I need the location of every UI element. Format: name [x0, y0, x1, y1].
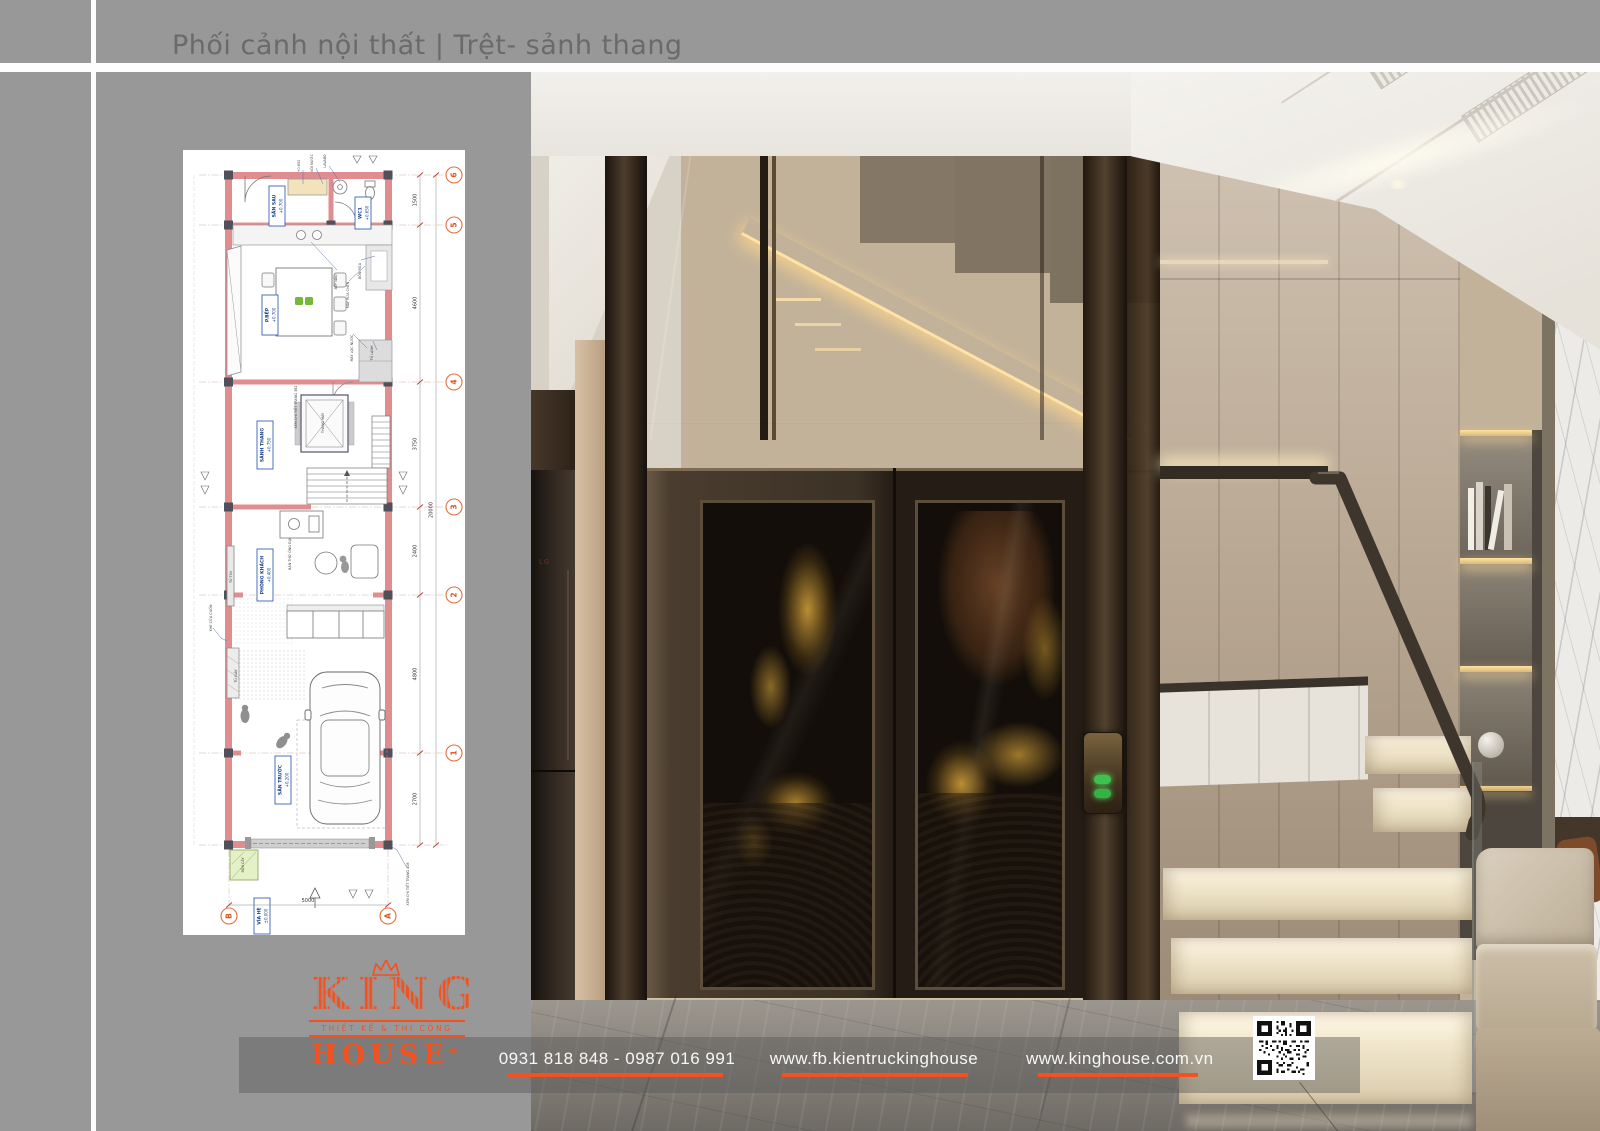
svg-text:6: 6	[450, 172, 459, 177]
vertical-divider-line	[91, 0, 96, 1131]
svg-text:BÀN THỜ ÔNG ĐỊA: BÀN THỜ ÔNG ĐỊA	[287, 537, 292, 570]
svg-text:1: 1	[450, 750, 459, 755]
svg-text:+0.650: +0.650	[365, 205, 370, 220]
svg-text:MÁY LỌC NƯỚC: MÁY LỌC NƯỚC	[349, 334, 354, 362]
svg-text:3750: 3750	[413, 438, 419, 451]
svg-text:+0.400: +0.400	[267, 567, 272, 582]
appliance-logo: LG	[539, 558, 550, 566]
glass-mullion	[760, 148, 768, 440]
svg-text:+0.750: +0.750	[267, 437, 272, 452]
svg-text:TỦ LẠNH: TỦ LẠNH	[369, 345, 374, 361]
wood-panel	[531, 390, 577, 470]
floor-plan-drawing: SÂN SAU +0.700 WC1 +0.650 P.BẾP +0.700 S…	[183, 150, 465, 935]
svg-text:SÂN SAU: SÂN SAU	[271, 194, 278, 217]
svg-text:20000: 20000	[429, 502, 435, 518]
door-glass-left	[700, 500, 875, 990]
svg-text:2: 2	[450, 592, 459, 597]
logo-rule	[309, 1035, 465, 1037]
interior-render: LG	[531, 72, 1600, 1131]
svg-text:4800: 4800	[413, 668, 419, 681]
door-center-seam	[893, 468, 896, 1014]
glass-mullion	[772, 148, 776, 440]
refrigerator: LG	[531, 470, 575, 1000]
logo-king-text: KING	[305, 972, 469, 1018]
stair-tread[interactable]	[1176, 994, 1472, 1012]
svg-text:5: 5	[450, 222, 459, 227]
crown-icon	[371, 960, 401, 976]
sofa-arm	[1476, 1028, 1600, 1131]
svg-text:MÁY RỬA CHÉN: MÁY RỬA CHÉN	[345, 281, 350, 308]
downlight	[1386, 180, 1410, 189]
elevator-shaft-glass	[610, 148, 1160, 440]
horizontal-divider-line	[0, 63, 1600, 72]
svg-text:BỒN CÂY: BỒN CÂY	[240, 857, 245, 873]
sofa-backrest	[1476, 848, 1594, 948]
svg-text:SÂN TRƯỚC: SÂN TRƯỚC	[277, 764, 284, 795]
svg-text:VÒI NƯỚC: VÒI NƯỚC	[309, 153, 314, 172]
svg-text:KHE CỬA CUỐN: KHE CỬA CUỐN	[208, 604, 213, 631]
svg-text:THANG MÁY: THANG MÁY	[320, 412, 325, 434]
kitchen	[227, 225, 392, 382]
website-url: www.kinghouse.com.vn	[1026, 1049, 1208, 1069]
logo-tagline: THIẾT KẾ & THI CÔNG	[305, 1024, 469, 1033]
svg-text:BẾP NẤU: BẾP NẤU	[332, 274, 338, 289]
elevator-and-stairs	[295, 395, 390, 504]
phone-numbers: 0931 818 848 - 0987 016 991	[498, 1049, 736, 1069]
svg-text:A: A	[384, 913, 393, 919]
svg-text:3: 3	[450, 504, 459, 509]
accent-underline	[1038, 1073, 1198, 1077]
svg-text:BỒN RỬA: BỒN RỬA	[357, 262, 362, 279]
logo-house-text: HOUSE®	[305, 1039, 469, 1069]
presentation-page: LG	[0, 0, 1600, 1131]
logo-rule	[309, 1020, 465, 1022]
shaft-side-glass	[1127, 148, 1161, 1016]
svg-text:WC1: WC1	[358, 207, 364, 219]
car-top-view	[305, 672, 385, 824]
call-button-up[interactable]	[1094, 775, 1111, 784]
elevator-transom-beam	[607, 424, 1163, 470]
svg-text:PHÒNG KHÁCH: PHÒNG KHÁCH	[259, 556, 266, 595]
qr-code	[1253, 1016, 1315, 1080]
svg-text:2400: 2400	[413, 545, 419, 558]
accent-underline	[507, 1073, 723, 1077]
sofa-seat	[1476, 944, 1597, 1032]
paved-area	[233, 650, 307, 702]
people-figures	[241, 705, 293, 751]
svg-text:B: B	[225, 913, 234, 919]
fridge-handle	[567, 570, 569, 760]
svg-text:2700: 2700	[413, 793, 419, 806]
shaft-column-right	[1083, 148, 1127, 1016]
stair-tread[interactable]	[1160, 850, 1470, 868]
registered-mark: ®	[449, 1047, 463, 1057]
svg-text:1500: 1500	[413, 194, 419, 207]
facebook-url: www.fb.kientruckinghouse	[768, 1049, 980, 1069]
svg-text:TỦ GIÀY: TỦ GIÀY	[233, 668, 238, 683]
svg-text:+0.700: +0.700	[272, 307, 277, 322]
door-glass-right	[915, 500, 1065, 990]
stair-riser-led	[1171, 938, 1472, 994]
stair-tread[interactable]	[1167, 920, 1472, 938]
elevator-doors	[645, 468, 1087, 1014]
page-title: Phối cảnh nội thất | Trệt- sảnh thang	[172, 30, 683, 61]
shaft-column-left	[605, 148, 647, 1016]
floor-plan-sheet: SÂN SAU +0.700 WC1 +0.650 P.BẾP +0.700 S…	[183, 150, 465, 935]
svg-text:XEM CHI TIẾT TRANG 382: XEM CHI TIẾT TRANG 382	[292, 385, 298, 428]
svg-text:+0.650: +0.650	[297, 160, 301, 173]
call-button-down[interactable]	[1094, 789, 1111, 798]
svg-text:4: 4	[450, 379, 459, 384]
svg-text:+0.200: +0.200	[285, 772, 290, 787]
stair-handrail[interactable]	[1221, 442, 1551, 862]
brand-logo: KING THIẾT KẾ & THI CÔNG HOUSE®	[305, 972, 469, 1069]
svg-text:LAVABO: LAVABO	[323, 154, 327, 168]
stair-riser-led	[1163, 868, 1472, 920]
elevator-call-panel[interactable]	[1083, 732, 1123, 814]
svg-text:TỦ TIVI: TỦ TIVI	[228, 571, 233, 584]
svg-text:±0.000: ±0.000	[264, 908, 269, 923]
svg-text:5000: 5000	[302, 898, 315, 904]
svg-text:+0.700: +0.700	[279, 198, 284, 213]
svg-text:4600: 4600	[413, 297, 419, 310]
svg-text:XEM CHI TIẾT TRANG 408: XEM CHI TIẾT TRANG 408	[404, 862, 410, 905]
accent-underline	[782, 1073, 968, 1077]
sofa[interactable]	[1476, 838, 1600, 1131]
